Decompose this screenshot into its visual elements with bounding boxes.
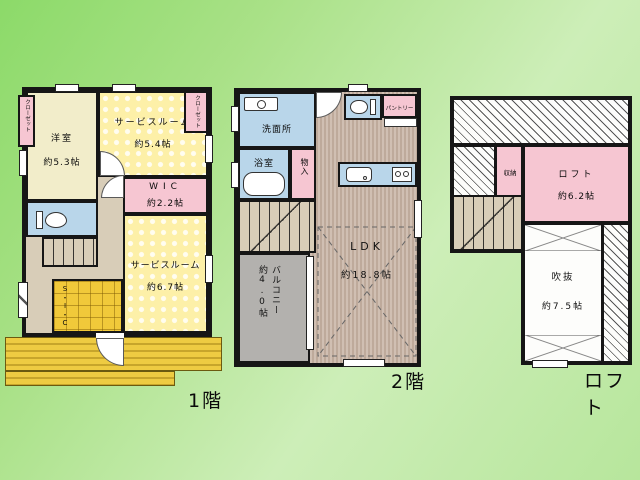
room-size: 約6.2帖 xyxy=(525,189,628,202)
room-loft: ロフト 約6.2帖 xyxy=(521,143,632,225)
room-name: ロフト xyxy=(525,167,628,180)
stairs-loft xyxy=(454,197,523,249)
room-name: 吹抜 xyxy=(525,269,601,283)
room-shuunou: 収納 xyxy=(497,147,523,197)
void-ceiling-marks-bottom xyxy=(525,335,601,361)
loft-lower-block: 吹抜 約7.5帖 xyxy=(521,221,632,365)
window xyxy=(532,360,568,368)
roof-hatch-top xyxy=(450,96,632,147)
void-label-block: 吹抜 約7.5帖 xyxy=(525,269,601,312)
roof-hatch-right xyxy=(601,225,628,361)
roof-hatch-left xyxy=(454,147,497,197)
floor-plan-loft: 収納 ロフト 約6.2帖 吹抜 約7.5帖 xyxy=(0,0,640,480)
void-ceiling-marks-top xyxy=(525,225,601,251)
loft-left-block: 収納 xyxy=(450,143,527,253)
floor-label-loft: ロフト xyxy=(584,366,640,420)
room-size: 約7.5帖 xyxy=(525,299,601,312)
floor-plan-image: 洋室 約5.3帖 クローゼット サービスルーム 約5.4帖 クローゼット WIC… xyxy=(0,0,640,480)
room-name: 収納 xyxy=(497,167,523,177)
